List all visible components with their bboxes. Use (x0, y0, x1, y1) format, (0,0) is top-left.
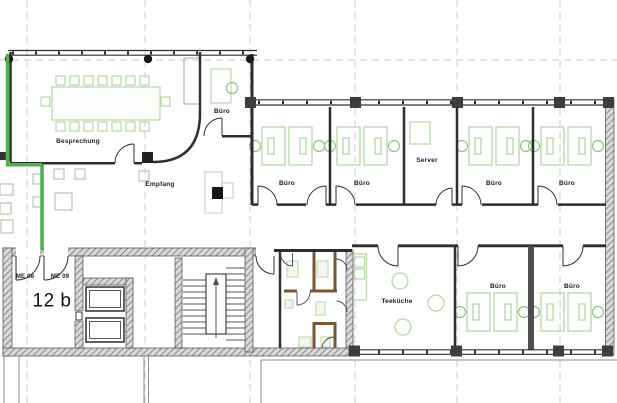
room-label-buero-3: Büro (486, 181, 502, 188)
floor-plan-svg (0, 0, 617, 403)
room-label-buero-4: Büro (559, 181, 575, 188)
room-label-buero-6: Büro (564, 284, 580, 291)
room-label-server: Server (416, 158, 437, 165)
door-label-me08: ME 08 (16, 274, 34, 280)
desk-pair (529, 127, 604, 165)
room-label-teekueche: Teeküche (381, 299, 412, 306)
door-label-me09: ME 09 (51, 274, 69, 280)
room-label-buero-5: Büro (490, 284, 506, 291)
site-lines (4, 356, 617, 403)
door-arc (115, 144, 134, 163)
reception-desk (205, 172, 233, 213)
desk-pair (529, 293, 604, 331)
waiting-area-furniture (0, 169, 149, 233)
door-arc (204, 118, 222, 136)
unit-label-12b: 12 b (33, 292, 72, 311)
door-arc (256, 256, 274, 274)
room-label-empfang: Empfang (145, 182, 174, 189)
floor-plan-drawing: Besprechung Büro Empfang Büro Büro Serve… (0, 0, 617, 403)
small-office-desk (184, 58, 238, 104)
office-doors (258, 186, 557, 205)
staircase (183, 268, 245, 340)
desk-pair (250, 127, 325, 165)
room-label-buero-klein: Büro (214, 109, 230, 116)
desk-pair (457, 127, 532, 165)
bottom-row-doors (378, 246, 583, 266)
kitchen-furniture (353, 254, 445, 335)
room-label-buero-1: Büro (279, 181, 295, 188)
room-label-besprechung: Besprechung (56, 139, 100, 146)
room-label-buero-2: Büro (354, 181, 370, 188)
server-rack (410, 122, 430, 144)
desk-pair (455, 293, 530, 331)
wc-fixtures (285, 261, 330, 347)
desk-pair (325, 127, 400, 165)
elevator-machines (86, 287, 124, 342)
meeting-table (41, 76, 170, 131)
